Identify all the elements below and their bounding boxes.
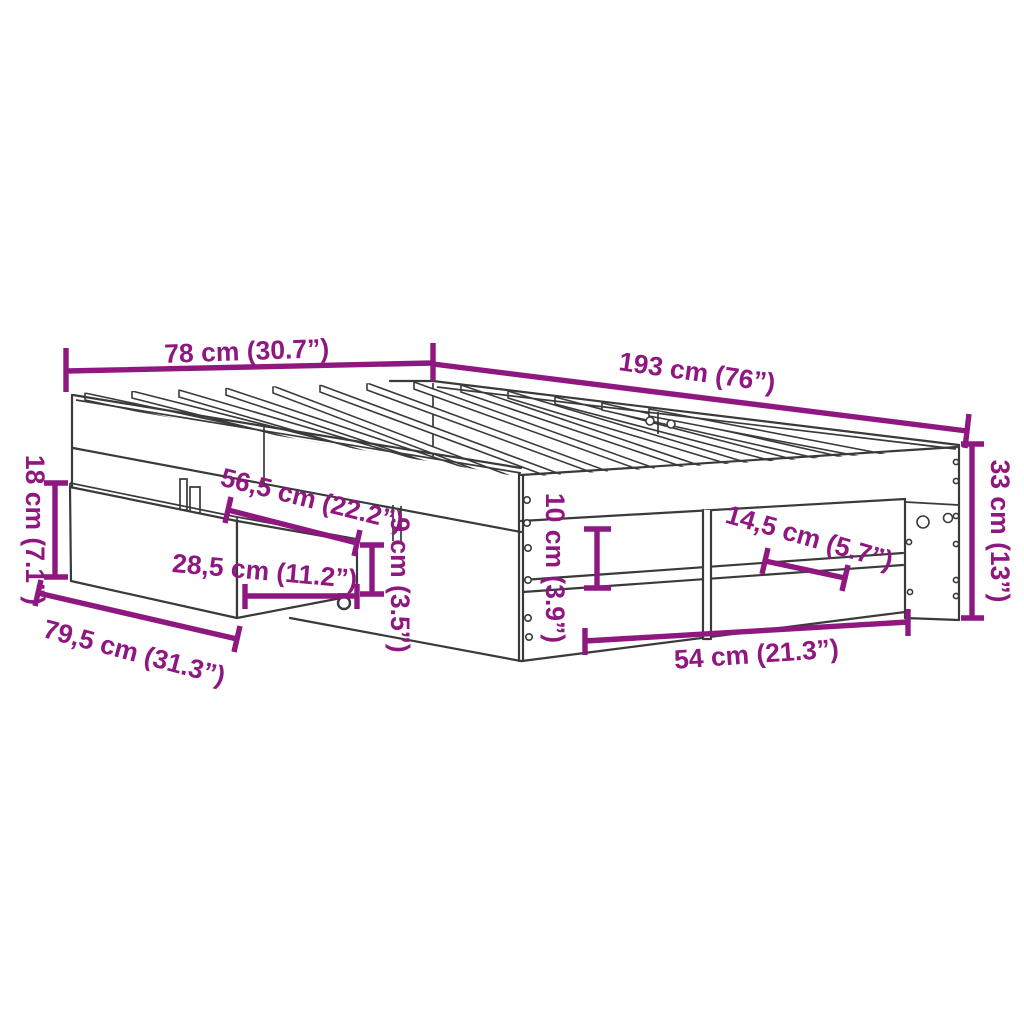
center-leg [703, 510, 711, 639]
dimension-label: 78 cm (30.7”) [164, 333, 330, 369]
slatted-top [85, 382, 889, 484]
diagram-canvas: 78 cm (30.7”) 193 cm (76”) 18 cm (7.1”) … [0, 0, 1024, 1024]
dimension-label: 79,5 cm (31.3”) [40, 614, 228, 691]
dimension-label: 33 cm (13”) [985, 460, 1015, 603]
dimension-head-width: 78 cm (30.7”) [66, 333, 433, 392]
bed-frame-drawing [70, 381, 959, 661]
dimension-label: 18 cm (7.1”) [20, 455, 50, 605]
dimension-label: 9 cm (3.5”) [385, 517, 415, 653]
dimension-frame-height: 33 cm (13”) [961, 444, 1015, 618]
dimension-drawer-front-height: 18 cm (7.1”) [20, 455, 68, 605]
dimension-line [360, 545, 384, 594]
front-corner-post [519, 474, 523, 661]
dimension-line [584, 529, 611, 588]
top-edge [390, 381, 959, 449]
foot-panel [905, 445, 959, 620]
bed-frame-dimension-diagram: 78 cm (30.7”) 193 cm (76”) 18 cm (7.1”) … [0, 0, 1024, 1024]
dimension-label: 10 cm (3.9”) [540, 493, 570, 643]
dimension-shelf-clearance: 14,5 cm (5.7”) [723, 499, 897, 591]
dimension-line [961, 444, 984, 618]
